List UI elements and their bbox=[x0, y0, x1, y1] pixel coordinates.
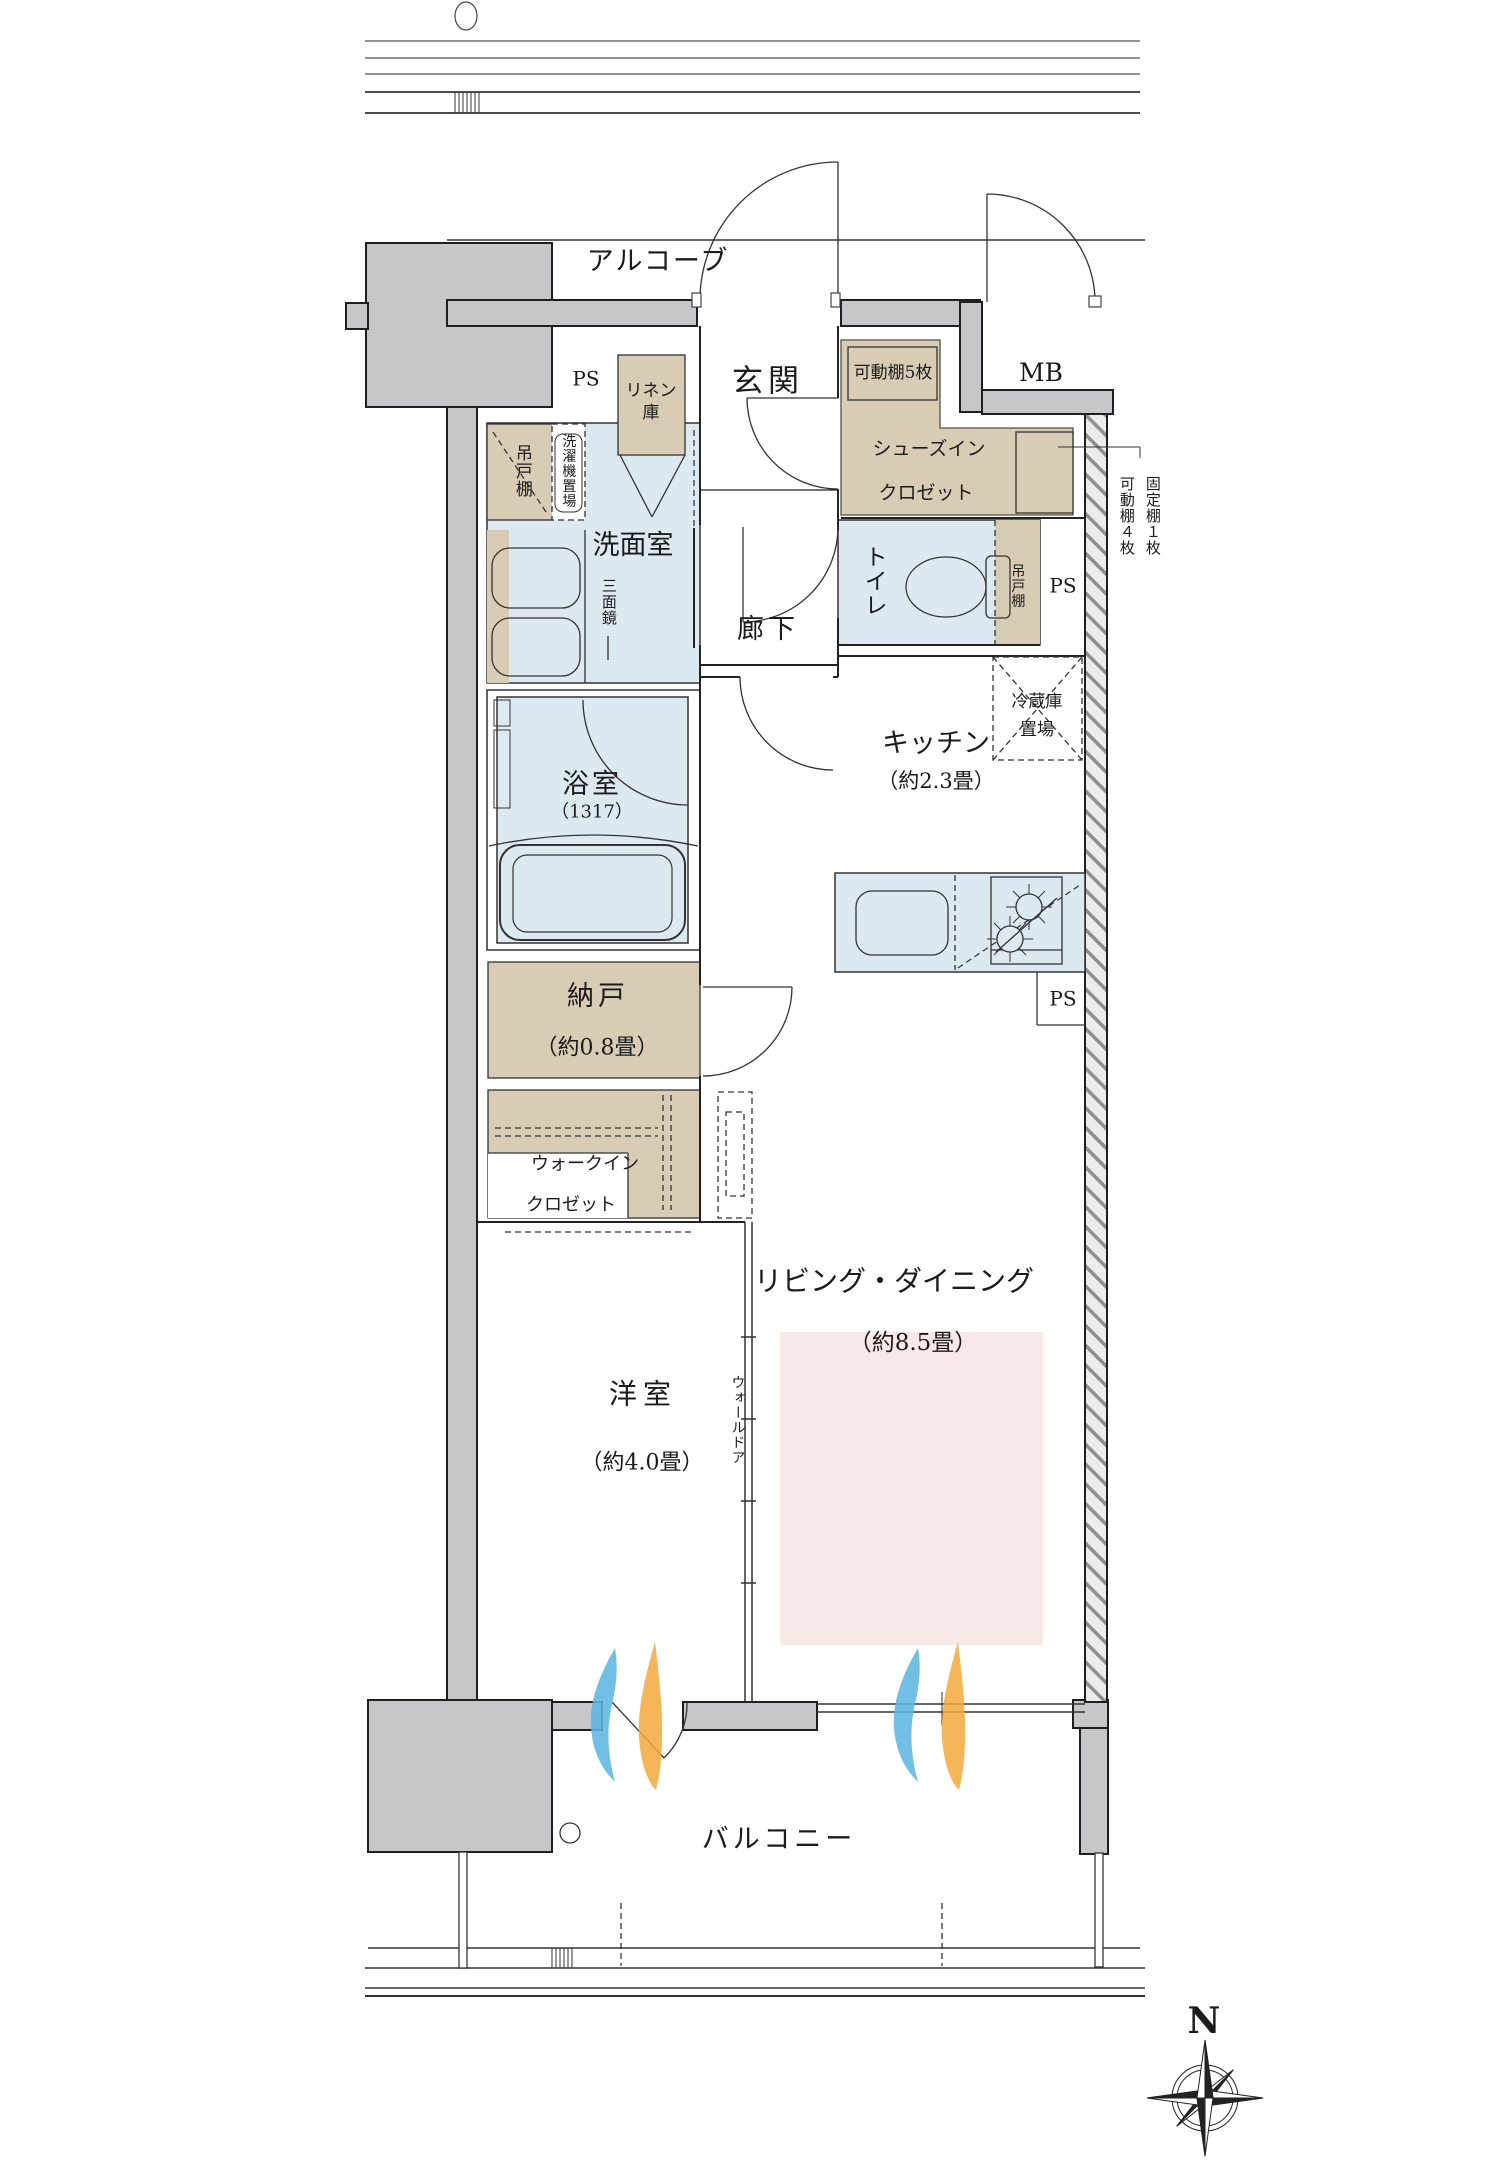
fixture-label-fridge-1: 冷蔵庫 bbox=[1012, 694, 1063, 712]
fixture-label-hanging-cabinet-washroom: 吊戸棚 bbox=[512, 444, 530, 498]
room-label-shoes-closet-2: クロゼット bbox=[878, 484, 973, 504]
top-railing bbox=[365, 2, 1140, 113]
fixture-label-triple-mirror: 三面鏡 bbox=[600, 578, 616, 626]
fixture-label-fridge-2: 置場 bbox=[1020, 722, 1054, 740]
room-label-kitchen: キッチン bbox=[882, 730, 990, 758]
room-label-shoes-closet-1: シューズイン bbox=[872, 440, 985, 460]
label-mb: MB bbox=[1019, 360, 1063, 386]
room-label-bedroom: 洋室 bbox=[609, 1379, 677, 1408]
room-label-kitchen-size: （約2.3畳） bbox=[877, 770, 994, 792]
room-label-storage: 納戸 bbox=[567, 983, 629, 1011]
room-label-bedroom-size: （約4.0畳） bbox=[581, 1451, 704, 1474]
compass-rose bbox=[1147, 2040, 1263, 2156]
kitchen-counter bbox=[835, 873, 1085, 972]
label-ps-top: PS bbox=[572, 369, 599, 390]
room-label-bath-size: （1317） bbox=[551, 804, 633, 823]
fixture-label-hanging-cabinet-toilet: 吊戸棚 bbox=[1010, 564, 1025, 609]
note-movable-shelf: 可動棚４枚 bbox=[1118, 476, 1134, 556]
room-label-living-dining: リビング・ダイニング bbox=[754, 1266, 1034, 1295]
room-label-entrance: 玄関 bbox=[732, 366, 804, 399]
room-label-washroom: 洗面室 bbox=[593, 532, 674, 560]
hatched-wall bbox=[1085, 414, 1107, 1702]
room-label-storage-size: （約0.8畳） bbox=[536, 1036, 659, 1059]
fixture-label-linen-1: リネン bbox=[626, 383, 677, 401]
room-label-walkin-1: ウォークイン bbox=[531, 1156, 639, 1175]
label-ps-kitchen: PS bbox=[1049, 989, 1076, 1010]
room-label-walkin-2: クロゼット bbox=[526, 1197, 616, 1216]
fixture-label-washer-space: 洗濯機置場 bbox=[561, 434, 576, 509]
shoes-shelf bbox=[1016, 432, 1073, 513]
compass-north-label: N bbox=[1188, 2003, 1221, 2041]
room-label-living-dining-size: （約8.5畳） bbox=[849, 1331, 978, 1355]
floor-plan: アルコーブ PS リネン 庫 玄関 可動棚5枚 MB シューズイン クロゼット … bbox=[0, 0, 1500, 2164]
room-label-corridor: 廊下 bbox=[737, 616, 799, 644]
room-label-alcove: アルコーブ bbox=[587, 248, 730, 276]
note-fixed-shelf: 固定棚１枚 bbox=[1144, 476, 1160, 556]
room-label-toilet: トイレ bbox=[861, 545, 885, 617]
fixture-label-wall-door: ウォールドア bbox=[730, 1375, 745, 1465]
fixture-label-movable-shelf5: 可動棚5枚 bbox=[854, 365, 933, 383]
fixture-label-linen-2: 庫 bbox=[643, 405, 660, 423]
storage-room bbox=[488, 962, 700, 1078]
living-dining-area bbox=[780, 1332, 1043, 1645]
room-label-bath: 浴室 bbox=[562, 771, 622, 799]
room-label-balcony: バルコニー bbox=[702, 1826, 856, 1854]
label-ps-toilet: PS bbox=[1049, 576, 1076, 597]
